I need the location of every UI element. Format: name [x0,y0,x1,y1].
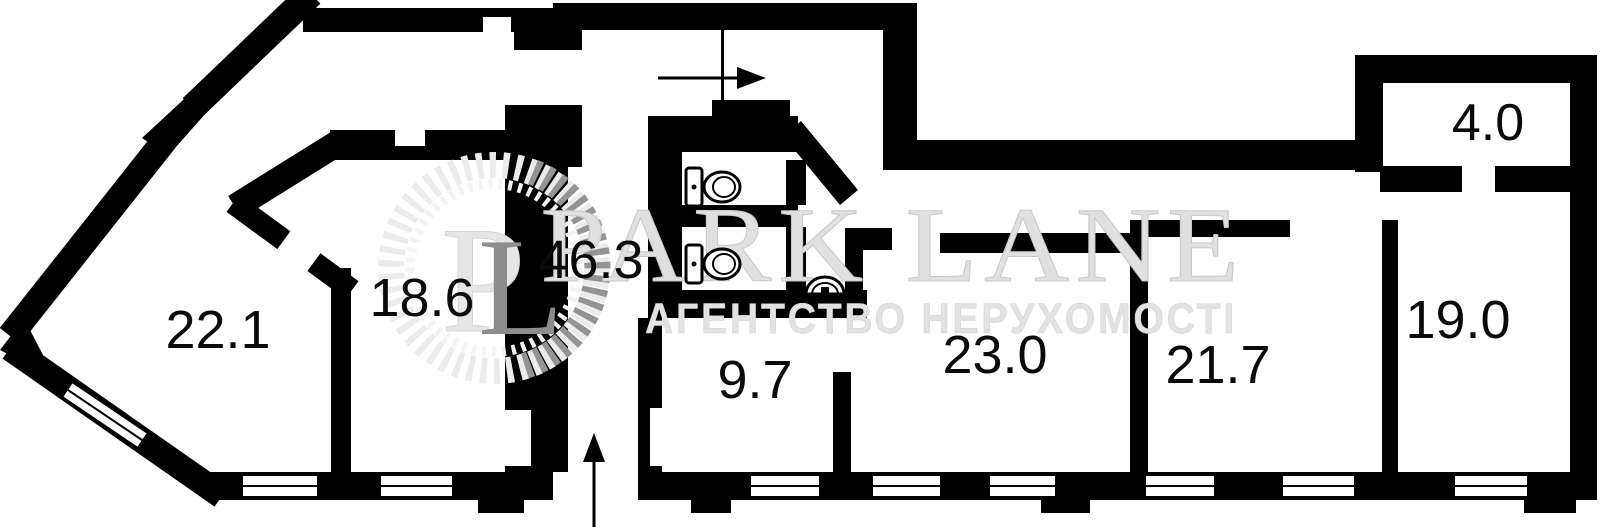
floor-plan-page: P L PARK LANE АГЕНТСТВО НЕРУХОМОСТІ [0,0,1600,527]
wall-21-19 [1382,220,1398,472]
window-line [68,390,142,440]
watermark-brand: PARK LANE [541,187,1246,305]
toilet-icon [686,168,740,206]
wall-stub [1041,500,1090,513]
room-area-label-18-6: 18.6 [369,268,474,328]
wall-wc-top [648,116,798,152]
wall-balcony-bottom-left [1380,166,1462,192]
wall-9-7-right [833,372,851,472]
watermark: P L PARK LANE АГЕНТСТВО НЕРУХОМОСТІ [391,165,1246,371]
wall-stub [478,500,524,513]
room-area-label-21-7: 21.7 [1165,335,1270,395]
watermark-tagline: АГЕНТСТВО НЕРУХОМОСТІ [645,295,1237,343]
wall-diagonal-topleft [192,0,311,108]
wall-shaft-block [505,105,582,167]
room-area-label-9-7: 9.7 [717,350,792,410]
entrance-arrow-top-icon [658,67,766,89]
wall-balcony-top [1355,55,1597,83]
room-area-label-22-1: 22.1 [165,300,270,360]
door-niche [650,408,662,466]
floor-plan-drawing: P L PARK LANE АГЕНТСТВО НЕРУХОМОСТІ [0,0,1600,527]
wall-diagonal-left [10,140,165,336]
wall-balcony-bottom-right [1495,166,1572,192]
room-area-label-19-0: 19.0 [1405,290,1510,350]
door-opening [284,240,314,262]
wall-diagonal-partition-upper [235,141,341,207]
entrance-arrow-bottom-icon [583,433,605,527]
wall-top-block [514,30,582,50]
wall-right-outer [1570,55,1597,500]
wall-notch [483,17,511,32]
room-area-label-23-0: 23.0 [942,325,1047,385]
wall-top-left [303,8,570,32]
room-area-label-4-0: 4.0 [1452,94,1524,152]
wall-top-right-wing [915,140,1382,170]
wall-top-middle [553,3,917,30]
door-niche [505,410,531,466]
wall-stub [1524,500,1576,513]
room-area-label-46-3: 46.3 [538,230,643,290]
wall-notch [395,130,425,146]
toilet-icon [686,245,740,283]
wall-stub [691,500,731,513]
entry-door-line [721,30,724,118]
wall-22-18 [331,268,351,472]
